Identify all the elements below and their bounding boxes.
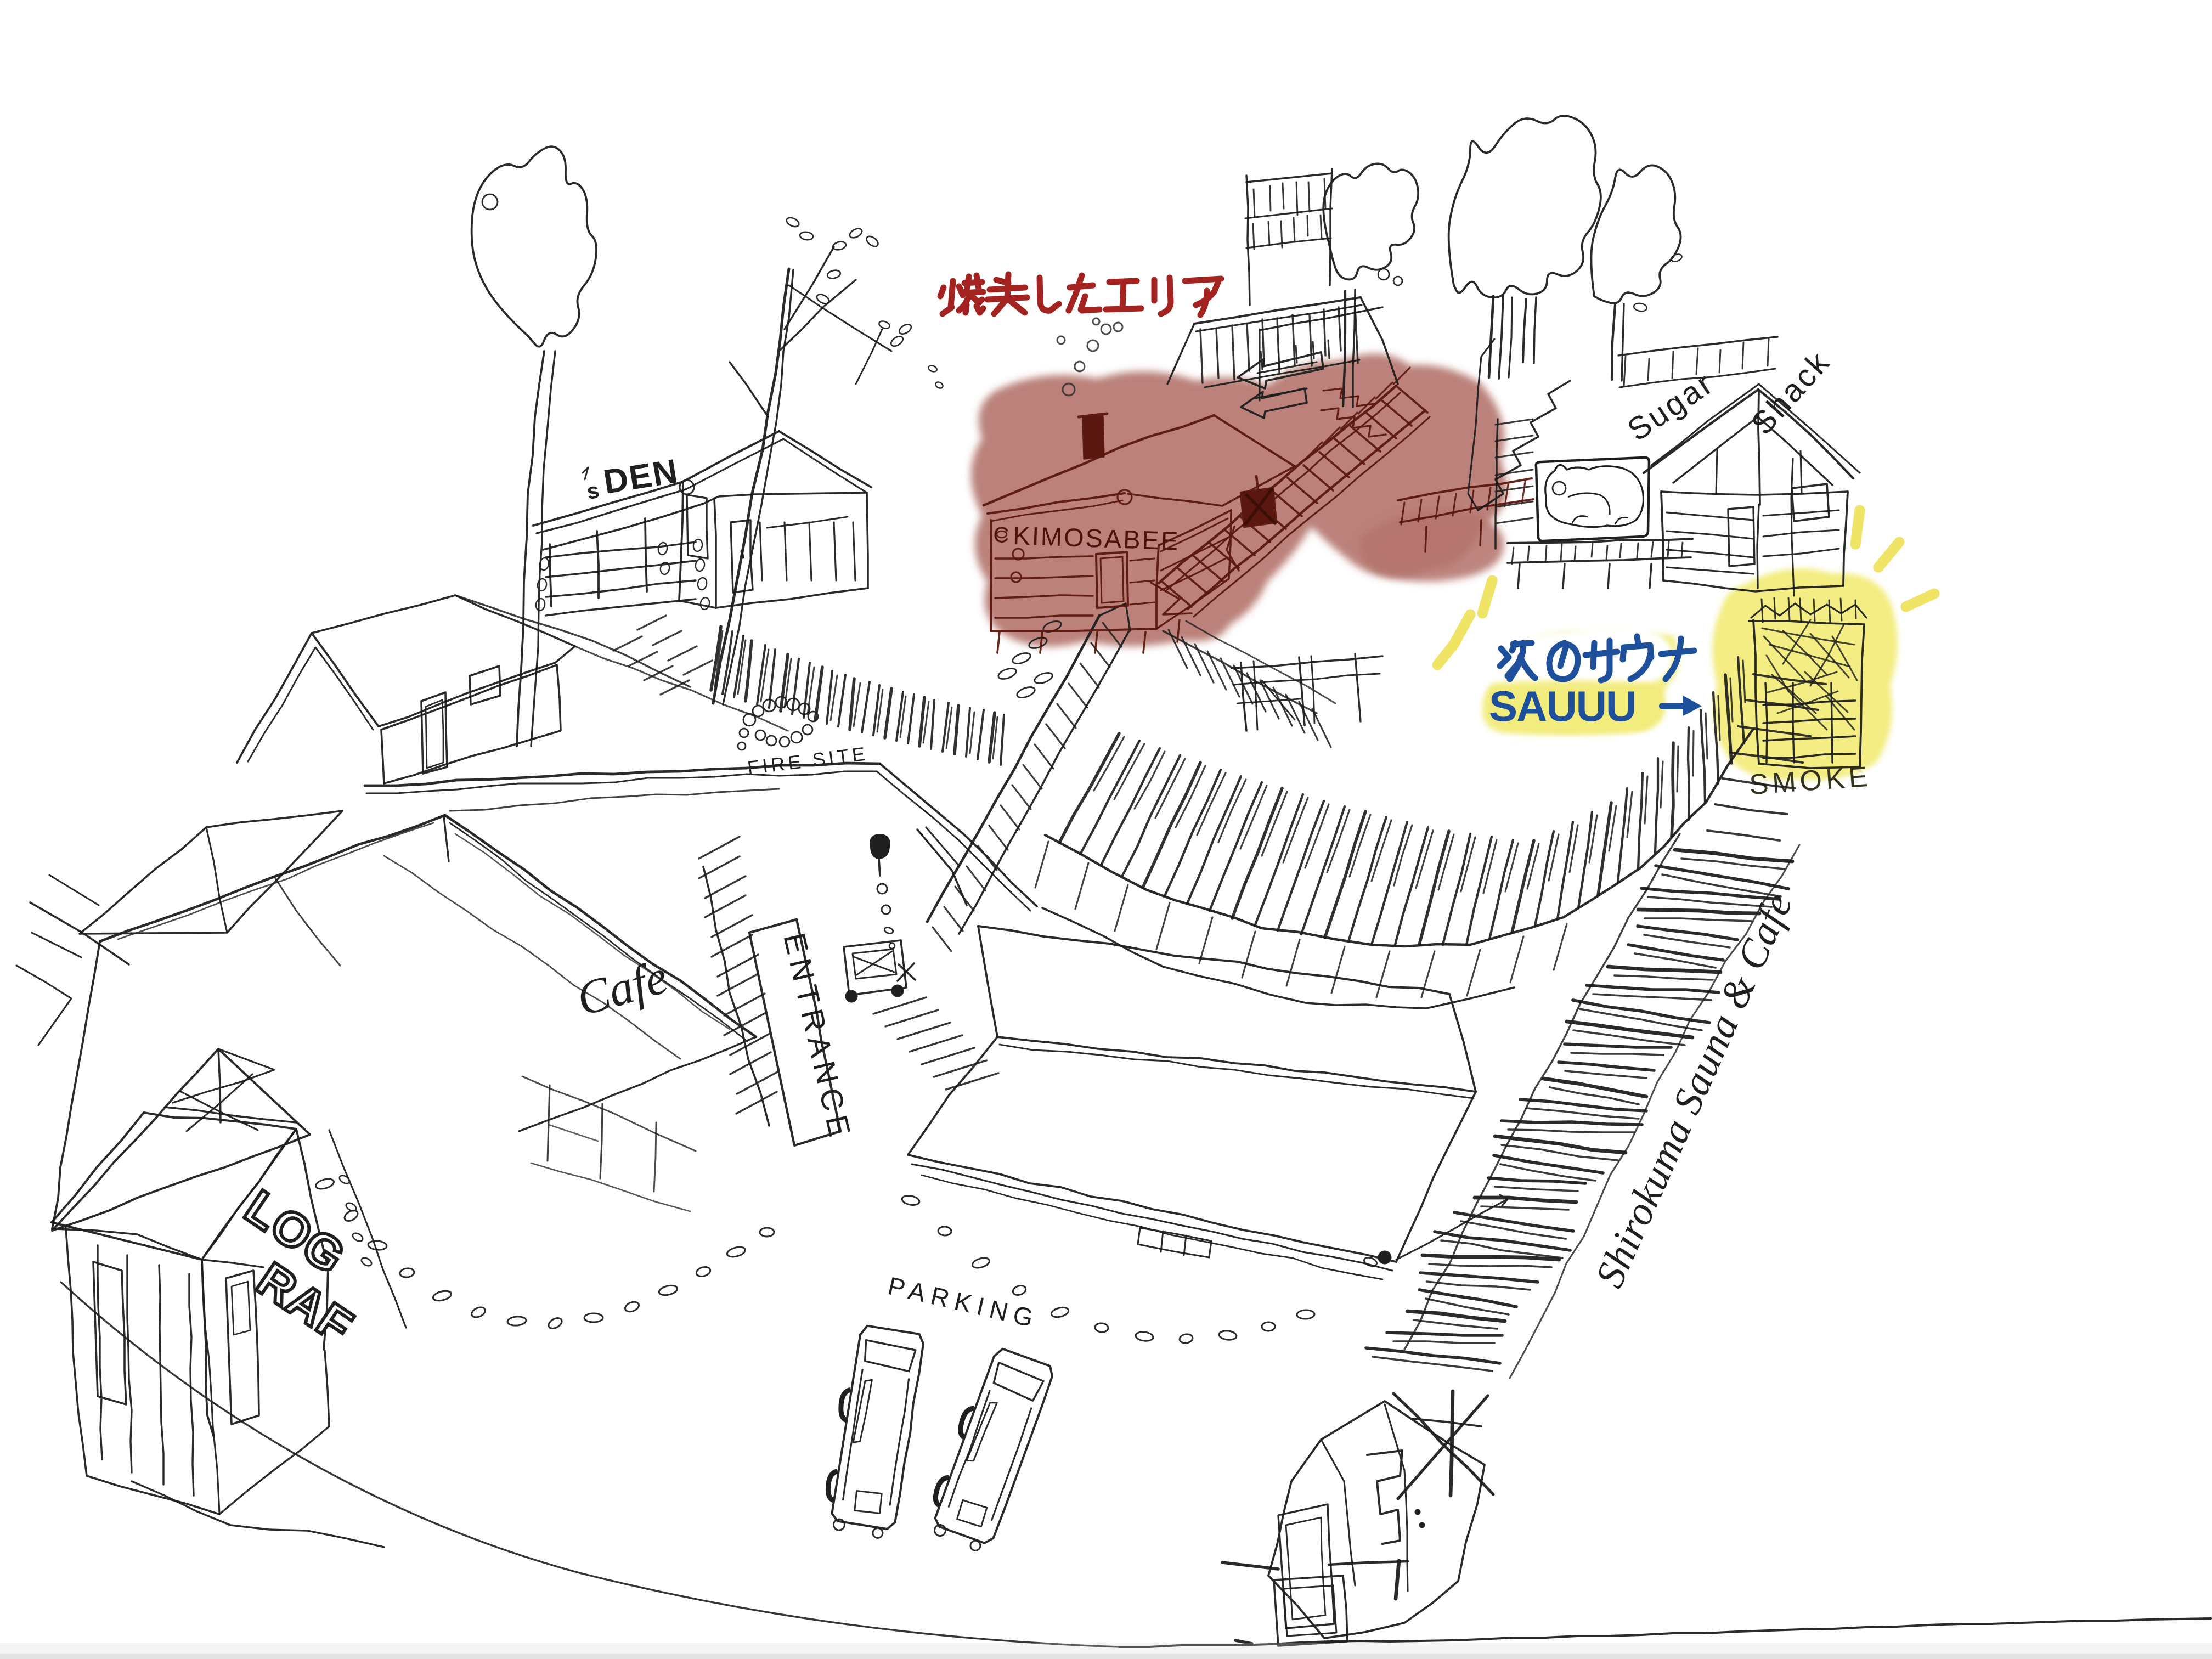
svg-text:SAUUU: SAUUU — [1489, 682, 1635, 730]
svg-text:KIMOSABEE: KIMOSABEE — [1013, 521, 1181, 556]
svg-text:C: C — [993, 523, 1009, 548]
